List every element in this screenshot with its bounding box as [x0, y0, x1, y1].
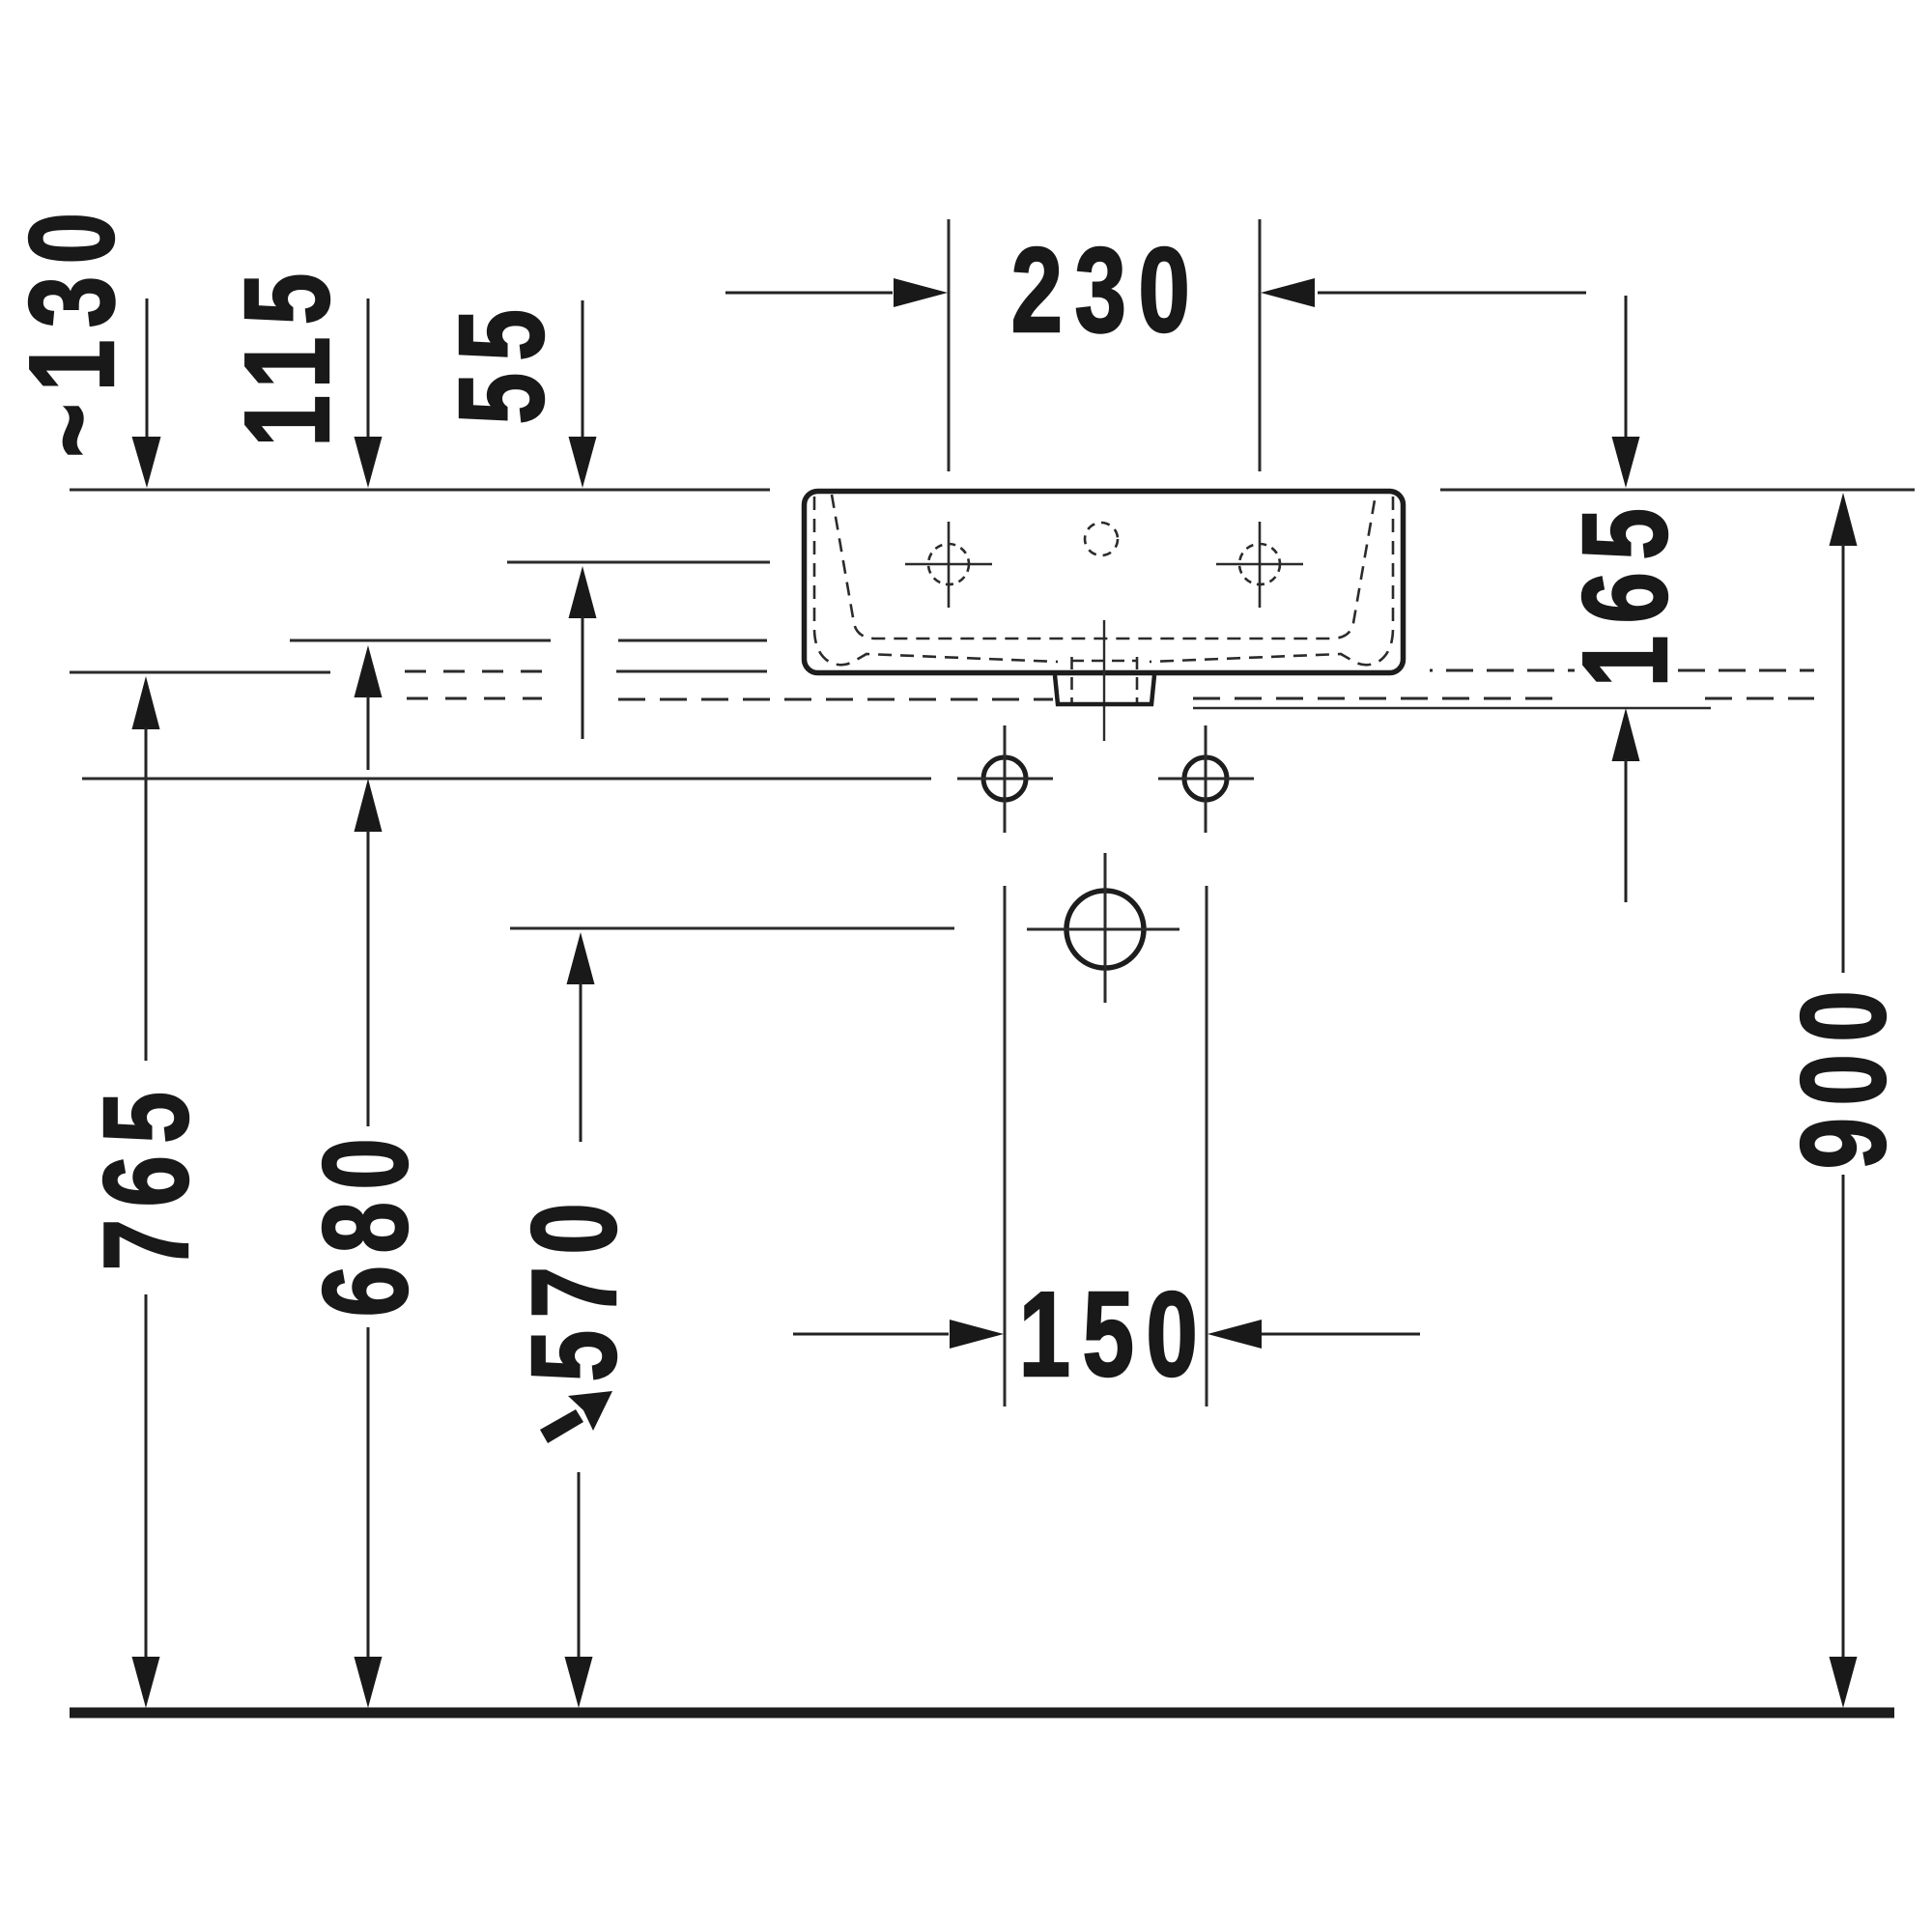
svg-text:230: 230 [1011, 223, 1203, 357]
svg-text:765: 765 [79, 1080, 213, 1271]
svg-text:165: 165 [1558, 497, 1692, 688]
svg-text:900: 900 [1776, 979, 1911, 1170]
svg-text:150: 150 [1019, 1267, 1210, 1402]
svg-text:570: 570 [507, 1191, 641, 1382]
svg-text:~130: ~130 [5, 201, 139, 458]
svg-text:55: 55 [435, 298, 569, 425]
svg-text:680: 680 [298, 1126, 433, 1318]
svg-text:115: 115 [220, 261, 355, 446]
